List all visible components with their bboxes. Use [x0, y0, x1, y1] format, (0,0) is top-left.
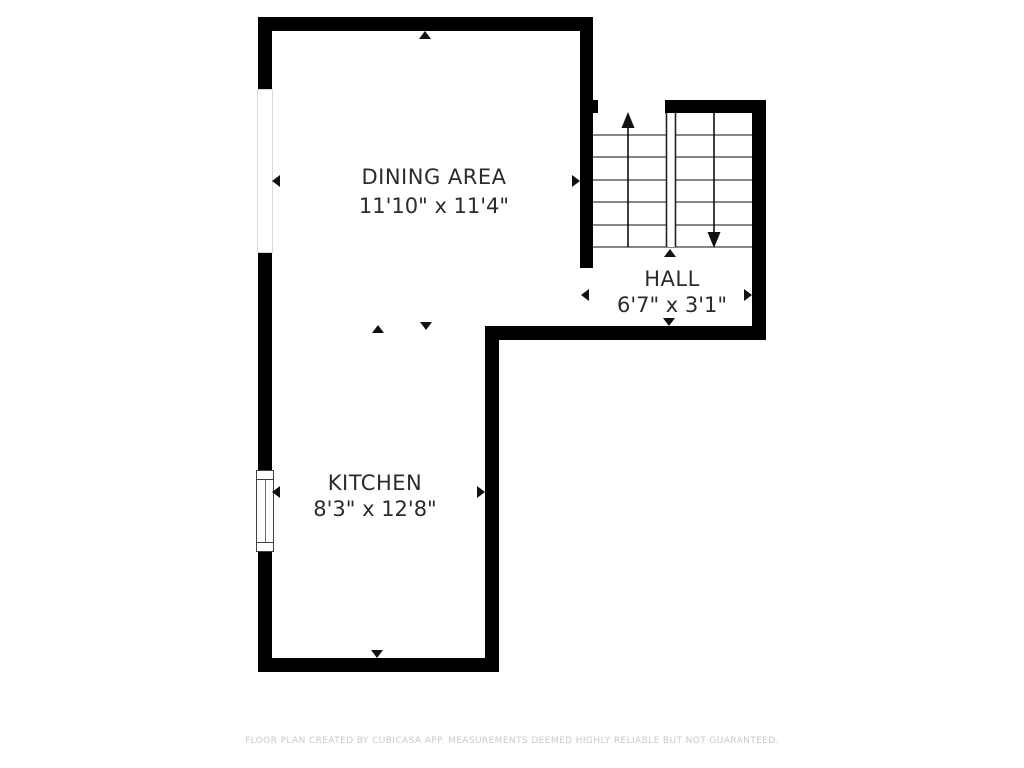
hall-top-arrow-icon [664, 249, 676, 257]
dining-area-dimensions: 11'10" x 11'4" [304, 194, 564, 218]
hall-name: HALL [572, 267, 772, 291]
hall-dimensions: 6'7" x 3'1" [572, 293, 772, 317]
stair-divider [667, 113, 675, 247]
dining-left-arrow-icon [272, 175, 280, 187]
dining-area-name: DINING AREA [304, 165, 564, 189]
dining-top-arrow-icon [419, 31, 431, 39]
wall-left-middle [258, 253, 272, 470]
kitchen-bottom-arrow-icon [371, 650, 383, 658]
wall-kitchen-bottom [258, 658, 499, 672]
disclaimer-text: FLOOR PLAN CREATED BY CUBICASA APP. MEAS… [0, 736, 1024, 746]
hall-bottom-arrow-icon [663, 318, 675, 326]
staircase-icon [580, 100, 766, 252]
kitchen-top-arrow-icon [372, 325, 384, 333]
window-dining-icon [257, 89, 273, 253]
kitchen-dimensions: 8'3" x 12'8" [255, 497, 495, 521]
dining-bottom-arrow-icon [420, 322, 432, 330]
wall-dining-top [258, 17, 593, 31]
wall-hall-bottom [485, 326, 766, 340]
kitchen-label: KITCHEN 8'3" x 12'8" [255, 471, 495, 521]
dining-area-label: DINING AREA 11'10" x 11'4" [304, 165, 564, 218]
kitchen-name: KITCHEN [255, 471, 495, 495]
floor-plan-canvas: DINING AREA 11'10" x 11'4" HALL 6'7" x 3… [0, 0, 1024, 768]
hall-label: HALL 6'7" x 3'1" [572, 267, 772, 317]
wall-left-upper [258, 17, 272, 89]
dining-right-arrow-icon [572, 175, 580, 187]
wall-left-lower [258, 552, 272, 672]
